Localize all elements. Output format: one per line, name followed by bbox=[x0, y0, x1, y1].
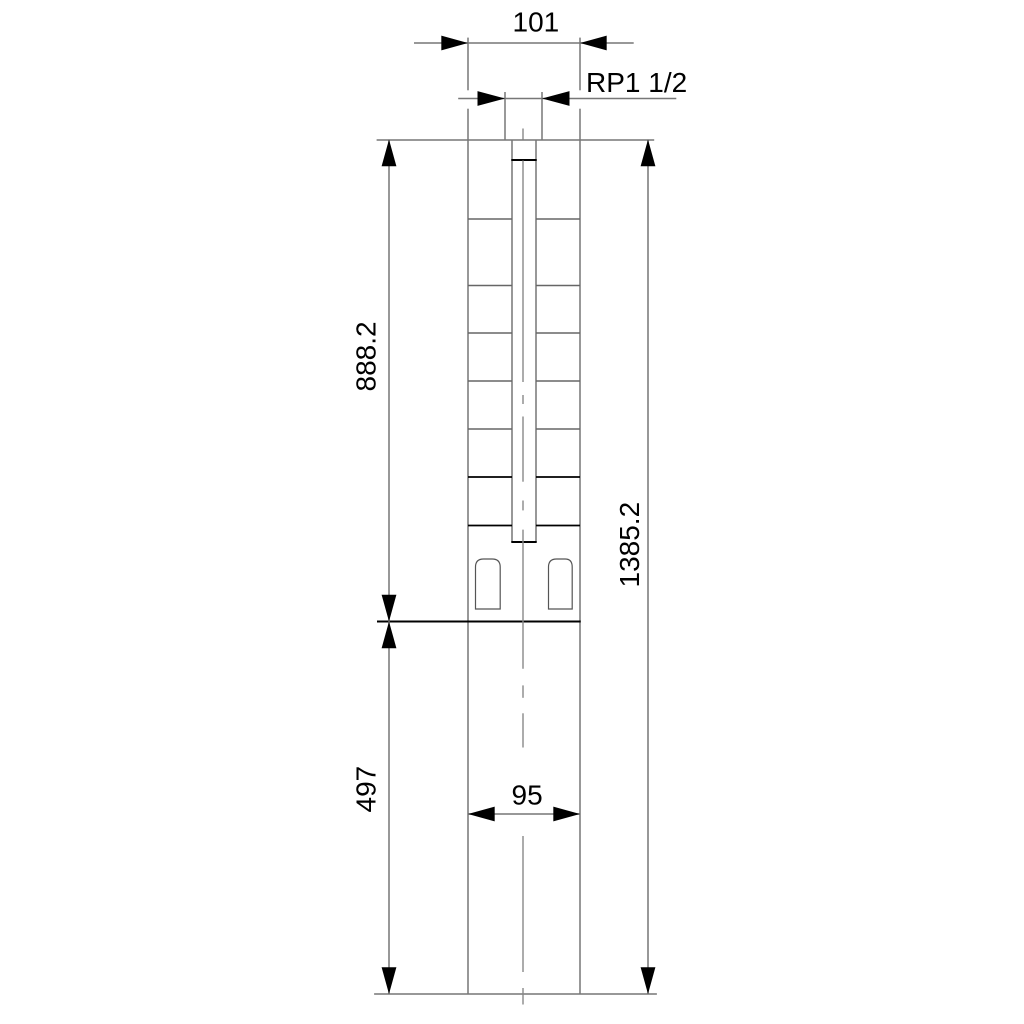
svg-text:101: 101 bbox=[513, 7, 560, 38]
svg-text:1385.2: 1385.2 bbox=[614, 502, 645, 588]
svg-text:RP1 1/2: RP1 1/2 bbox=[586, 67, 687, 98]
svg-text:497: 497 bbox=[351, 766, 382, 813]
svg-text:888.2: 888.2 bbox=[351, 321, 382, 391]
svg-text:95: 95 bbox=[512, 779, 543, 810]
